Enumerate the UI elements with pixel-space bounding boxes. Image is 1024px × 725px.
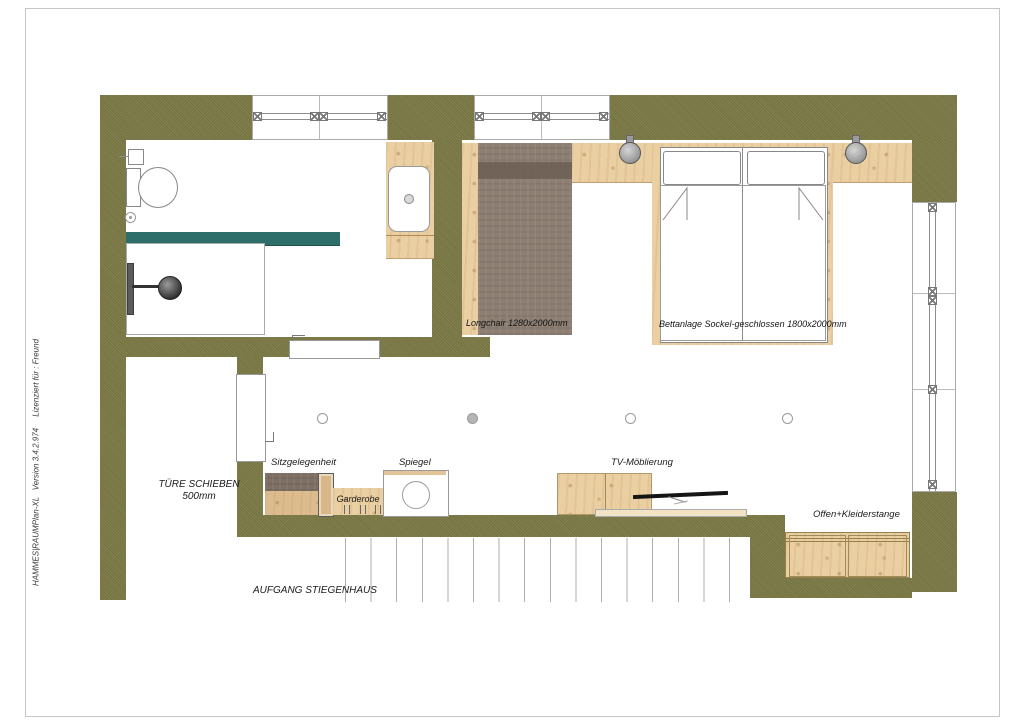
shower-head-icon (158, 276, 182, 300)
window-clip-icon (928, 287, 937, 296)
drain-dot (129, 216, 132, 219)
window-rail (935, 203, 936, 491)
wall-bath-right (432, 140, 462, 357)
label-stairs: AUFGANG STIEGENHAUS (253, 585, 377, 597)
ceiling-light-icon (467, 413, 478, 424)
window-top-1 (252, 95, 388, 140)
floorplan-canvas: HAMMES|RAUMPlan-XL Version 3.4.2.974 Liz… (0, 0, 1024, 725)
coat-hook-icon (375, 505, 381, 514)
coat-hook-icon (344, 505, 350, 514)
bed-center-split (742, 147, 743, 341)
ceiling-light-icon (317, 413, 328, 424)
bed-pillow-right (747, 151, 825, 185)
shower-tray (126, 243, 265, 335)
wall-left (100, 95, 126, 600)
label-sliding-door: TÜRE SCHIEBEN 500mm (157, 479, 241, 502)
window-clip-icon (599, 112, 608, 121)
toilet-plate-line (119, 156, 128, 157)
vanity-shelf-line (386, 235, 434, 236)
label-bed: Bettanlage Sockel-geschlossen 1800x2000m… (659, 319, 847, 329)
window-clip-icon (475, 112, 484, 121)
window-clip-icon (319, 112, 328, 121)
shower-rail (127, 263, 134, 315)
bed-pillow-left (663, 151, 741, 185)
longchair-frame (462, 143, 478, 335)
wardrobe-section (789, 535, 846, 577)
window-clip-icon (928, 203, 937, 212)
tv-shelf (595, 509, 747, 517)
window-clip-icon (377, 112, 386, 121)
toilet-bowl (138, 167, 178, 208)
coat-hook-icon (360, 505, 366, 514)
mirror-cabinet-top (384, 471, 446, 475)
label-longchair: Longchair 1280x2000mm (466, 318, 568, 328)
door-handle (292, 335, 293, 341)
floor-drain-icon (125, 212, 136, 223)
window-clip-icon (541, 112, 550, 121)
wall-bottom (237, 515, 750, 537)
licence-text: HAMMES|RAUMPlan-XL Version 3.4.2.974 Liz… (32, 243, 41, 683)
mirror-circle-icon (402, 481, 430, 509)
sliding-door-entry (236, 374, 266, 462)
window-top-2 (474, 95, 610, 140)
wall-corner-topright (912, 140, 957, 202)
wall-bottom-step (750, 515, 785, 598)
label-tv: TV-Möblierung (611, 458, 673, 469)
door-handle (273, 432, 274, 442)
wardrobe-section (848, 535, 907, 577)
window-clip-icon (928, 296, 937, 305)
tv-cabinet-divider (605, 474, 606, 514)
label-sliding-door-line1: TÜRE SCHIEBEN (158, 479, 239, 490)
basin-drain-icon (404, 194, 414, 204)
wall-right-lower (912, 492, 957, 592)
ceiling-light-icon (625, 413, 636, 424)
duvet-fold-left-icon (661, 186, 691, 222)
label-mirror: Spiegel (399, 458, 431, 469)
wall-bottom-lower (785, 578, 912, 598)
window-clip-icon (532, 112, 541, 121)
wall-top-right (610, 95, 957, 140)
window-clip-icon (253, 112, 262, 121)
label-sliding-door-line2: 500mm (182, 491, 215, 502)
longchair-headrest (478, 162, 572, 179)
window-clip-icon (928, 480, 937, 489)
toilet-flush-plate (128, 149, 144, 165)
label-open-rail: Offen+Kleiderstange (813, 510, 900, 521)
window-clip-icon (928, 385, 937, 394)
wardrobe-open-rail (785, 532, 910, 578)
sliding-door-bath (289, 340, 380, 359)
bench-side-panel (318, 473, 334, 517)
label-coat-rack: Garderobe (333, 494, 383, 504)
staircase-treads (345, 538, 754, 602)
window-rail (929, 203, 930, 491)
label-seat: Sitzgelegenheit (271, 458, 336, 469)
door-handle (292, 335, 305, 336)
wall-top-mid (388, 95, 474, 140)
window-clip-icon (310, 112, 319, 121)
wall-lamp-icon (619, 142, 641, 164)
wall-lamp-icon (845, 142, 867, 164)
wall-door-nib (237, 357, 263, 374)
ceiling-light-icon (782, 413, 793, 424)
window-right (912, 202, 956, 492)
duvet-fold-right-icon (795, 186, 825, 222)
